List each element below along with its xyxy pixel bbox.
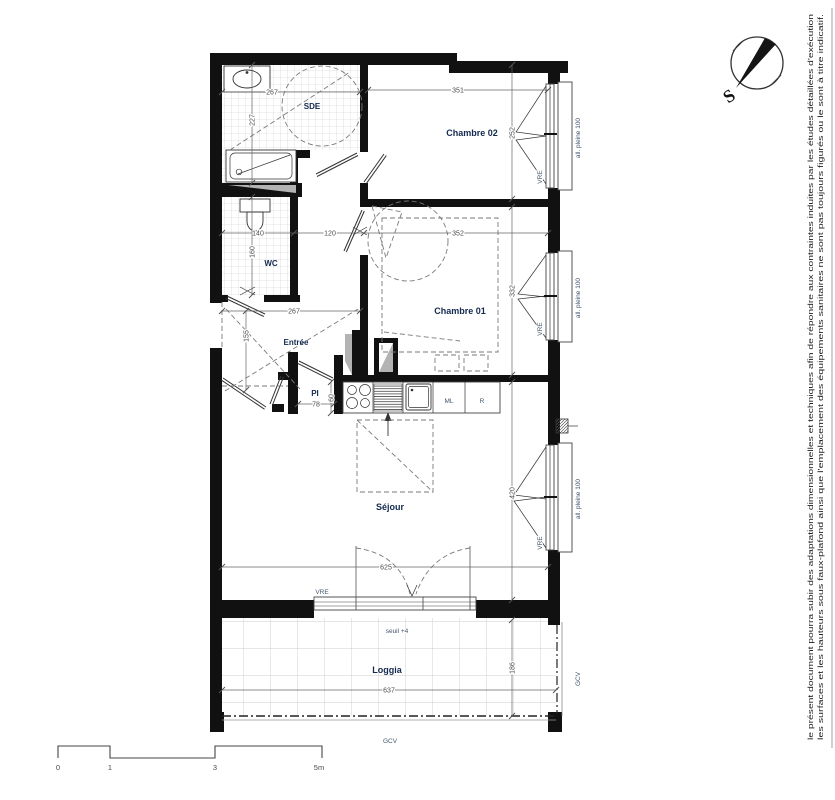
bay-window-frame [314, 597, 476, 610]
wall [210, 53, 457, 65]
vre-label-chambre02: VRE [537, 170, 544, 184]
window-sill [558, 443, 572, 552]
dim-entree-width: 267 [288, 309, 300, 316]
wall [210, 712, 224, 732]
window-chambre01 [518, 251, 572, 342]
dim-loggia-width: 637 [383, 688, 395, 695]
room-label-entree: Entrée [284, 338, 309, 347]
vent-symbol [556, 419, 568, 433]
wall [210, 53, 222, 303]
washing-machine-label: ML [444, 398, 453, 405]
dim-placard-width: 78 [312, 402, 320, 409]
wall [298, 150, 310, 158]
vanity-sink-icon [224, 66, 270, 92]
compass-icon: S [719, 37, 783, 107]
compass-south-label: S [719, 85, 739, 107]
entree-access-path [226, 309, 300, 389]
compass-needle [736, 38, 776, 88]
kitchen-sink-icon [406, 384, 431, 410]
scale-tick-0: 0 [56, 763, 60, 772]
window-sill [558, 251, 572, 342]
wall [360, 199, 548, 207]
dim-loggia-height: 186 [510, 662, 517, 674]
room-label-sejour: Séjour [376, 502, 405, 512]
seuil-label: seuil +4 [386, 628, 409, 635]
scale-bar-shape [58, 746, 322, 758]
wall [210, 348, 222, 732]
wall [334, 355, 343, 414]
wall-shading [345, 334, 352, 375]
vre-label-sejour: VRE [537, 536, 544, 550]
room-label-placard: PI [311, 389, 319, 398]
gcv-label-bottom: GCV [383, 738, 398, 745]
vre-label-bay: VRE [315, 589, 329, 596]
room-label-loggia: Loggia [372, 665, 402, 675]
door-leaf-chambre02 [364, 154, 386, 184]
dim-hall-width: 120 [324, 231, 336, 238]
dim-chambre02-height: 252 [510, 127, 517, 139]
door-leaf-wc [226, 296, 265, 317]
sink-arrow-icon [385, 412, 392, 436]
door-leaf-sde [316, 153, 358, 177]
shower-tray-icon [226, 150, 296, 182]
dim-sde-height: 227 [250, 114, 257, 126]
wall [360, 65, 368, 152]
vre-label-chambre01: VRE [537, 322, 544, 336]
wall [360, 183, 368, 199]
wall [476, 600, 560, 618]
wall [360, 255, 368, 330]
wall [352, 330, 368, 378]
wall [288, 352, 298, 414]
window-sill [558, 82, 572, 190]
room-label-wc: WC [264, 259, 278, 268]
floor-plan-drawing: ML R 267 [0, 0, 835, 800]
wall [548, 712, 562, 732]
wall [210, 600, 314, 618]
wall [290, 197, 298, 295]
room-label-chambre02: Chambre 02 [446, 128, 498, 138]
drainer-icon [374, 384, 402, 411]
disclaimer-line-2: les surfaces et les hauteurs sous faux-p… [816, 14, 825, 740]
kitchen-counter: ML R [343, 382, 500, 436]
floor-plan-page: ML R 267 [0, 0, 835, 800]
scale-tick-5: 5m [314, 763, 324, 772]
dim-entree-height: 155 [244, 330, 251, 342]
turning-circle-chambre01 [368, 201, 448, 281]
allege-label-chambre02: all. pleine 100 [575, 118, 582, 158]
scale-tick-1: 1 [108, 763, 112, 772]
door-leaf-chambre01 [344, 210, 364, 252]
bed-chambre01 [382, 218, 498, 371]
bay-window-loggia [314, 546, 476, 610]
kitchen-clearance [357, 420, 433, 492]
disclaimer-line-1: le présent document pourra subir des ada… [806, 14, 815, 740]
room-label-chambre01: Chambre 01 [434, 306, 486, 316]
dim-chambre01-width: 352 [452, 231, 464, 238]
chambre01-arrow [372, 206, 402, 258]
dim-sde-width: 267 [266, 90, 278, 97]
door-leaf-entrance [222, 378, 267, 409]
dim-wc-width: 140 [252, 231, 264, 238]
dim-wc-height: 160 [250, 246, 257, 258]
window-chambre02 [516, 82, 572, 190]
wall [272, 404, 284, 412]
scale-bar: 0 1 3 5m [56, 746, 324, 772]
wall [264, 295, 300, 302]
allege-label-chambre01: all. pleine 100 [575, 278, 582, 318]
door-leaf-placard [298, 361, 333, 380]
dim-sejour-width: 625 [380, 565, 392, 572]
dim-chambre02-width: 351 [452, 88, 464, 95]
wall [548, 61, 560, 84]
wall [548, 188, 560, 253]
fridge-label: R [480, 398, 485, 405]
allege-label-sejour: all. pleine 100 [575, 479, 582, 519]
wall [337, 375, 548, 382]
gcv-label-right: GCV [575, 671, 582, 686]
disclaimer: le présent document pourra subir des ada… [806, 8, 832, 748]
dim-placard-depth: 60 [329, 394, 336, 402]
room-label-sde: SDE [304, 102, 321, 111]
dim-chambre01-height: 332 [510, 285, 517, 297]
window-sejour [514, 419, 578, 552]
dim-sejour-height: 420 [510, 487, 517, 499]
door-leaf-sejour [270, 376, 284, 405]
scale-tick-3: 3 [213, 763, 217, 772]
